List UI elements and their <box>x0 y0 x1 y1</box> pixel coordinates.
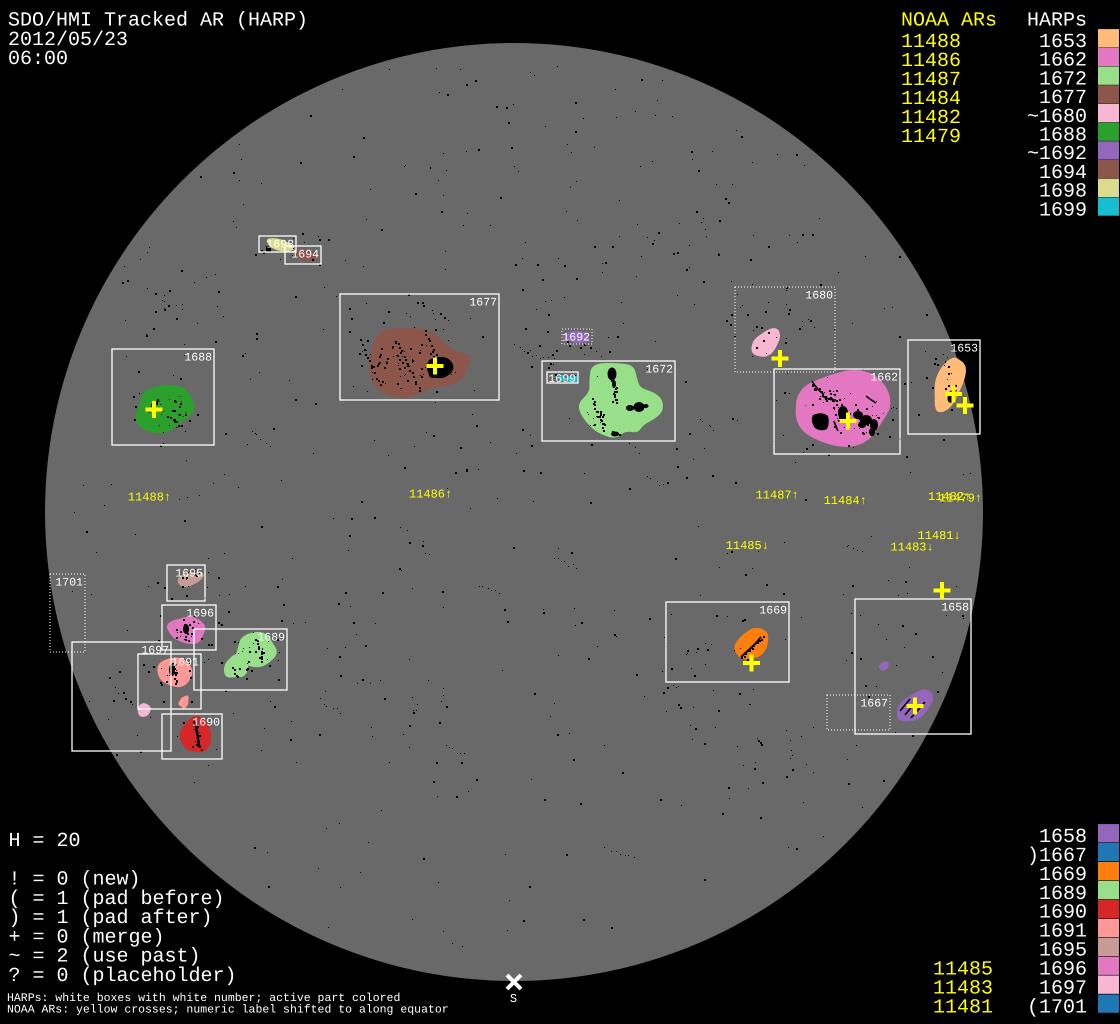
svg-text:11479: 11479 <box>901 126 961 149</box>
svg-text:1667: 1667 <box>860 698 888 711</box>
svg-text:11486↑: 11486↑ <box>409 488 452 502</box>
svg-text:1697: 1697 <box>141 645 169 658</box>
svg-text:? = 0 (placeholder): ? = 0 (placeholder) <box>9 965 237 988</box>
svg-text:1698: 1698 <box>266 239 294 252</box>
svg-text:1691: 1691 <box>171 657 199 670</box>
svg-text:NOAA ARs: NOAA ARs <box>901 10 997 33</box>
svg-text:11487↑: 11487↑ <box>756 489 799 503</box>
svg-text:1689: 1689 <box>257 632 285 645</box>
svg-text:06:00: 06:00 <box>8 48 68 71</box>
svg-text:HARPs: HARPs <box>1027 10 1087 33</box>
svg-text:1701: 1701 <box>55 577 83 590</box>
svg-text:1688: 1688 <box>184 352 212 365</box>
svg-text:(1701: (1701 <box>1027 996 1087 1019</box>
svg-text:1672: 1672 <box>645 364 673 377</box>
svg-text:11483↓: 11483↓ <box>891 540 934 554</box>
svg-text:NOAA ARs: yellow crosses; nume: NOAA ARs: yellow crosses; numeric label … <box>7 1004 449 1017</box>
svg-text:11484↑: 11484↑ <box>824 494 867 508</box>
svg-text:11485↓: 11485↓ <box>726 539 769 553</box>
svg-text:1699: 1699 <box>548 373 576 386</box>
svg-text:1662: 1662 <box>870 372 898 385</box>
svg-text:H = 20: H = 20 <box>9 830 81 853</box>
svg-text:11479↑: 11479↑ <box>939 492 982 506</box>
svg-text:11481: 11481 <box>933 996 993 1019</box>
svg-text:1694: 1694 <box>291 249 319 262</box>
svg-text:11488↑: 11488↑ <box>128 491 171 505</box>
svg-text:1692: 1692 <box>562 332 590 345</box>
svg-text:1653: 1653 <box>950 343 978 356</box>
svg-text:1695: 1695 <box>175 568 203 581</box>
svg-text:1696: 1696 <box>186 608 214 621</box>
svg-text:1669: 1669 <box>759 605 787 618</box>
svg-text:1690: 1690 <box>192 717 220 730</box>
svg-text:1680: 1680 <box>805 290 833 303</box>
svg-text:S: S <box>510 992 517 1006</box>
svg-text:1699: 1699 <box>1039 199 1087 222</box>
svg-text:1658: 1658 <box>941 602 969 615</box>
svg-text:1677: 1677 <box>469 297 497 310</box>
